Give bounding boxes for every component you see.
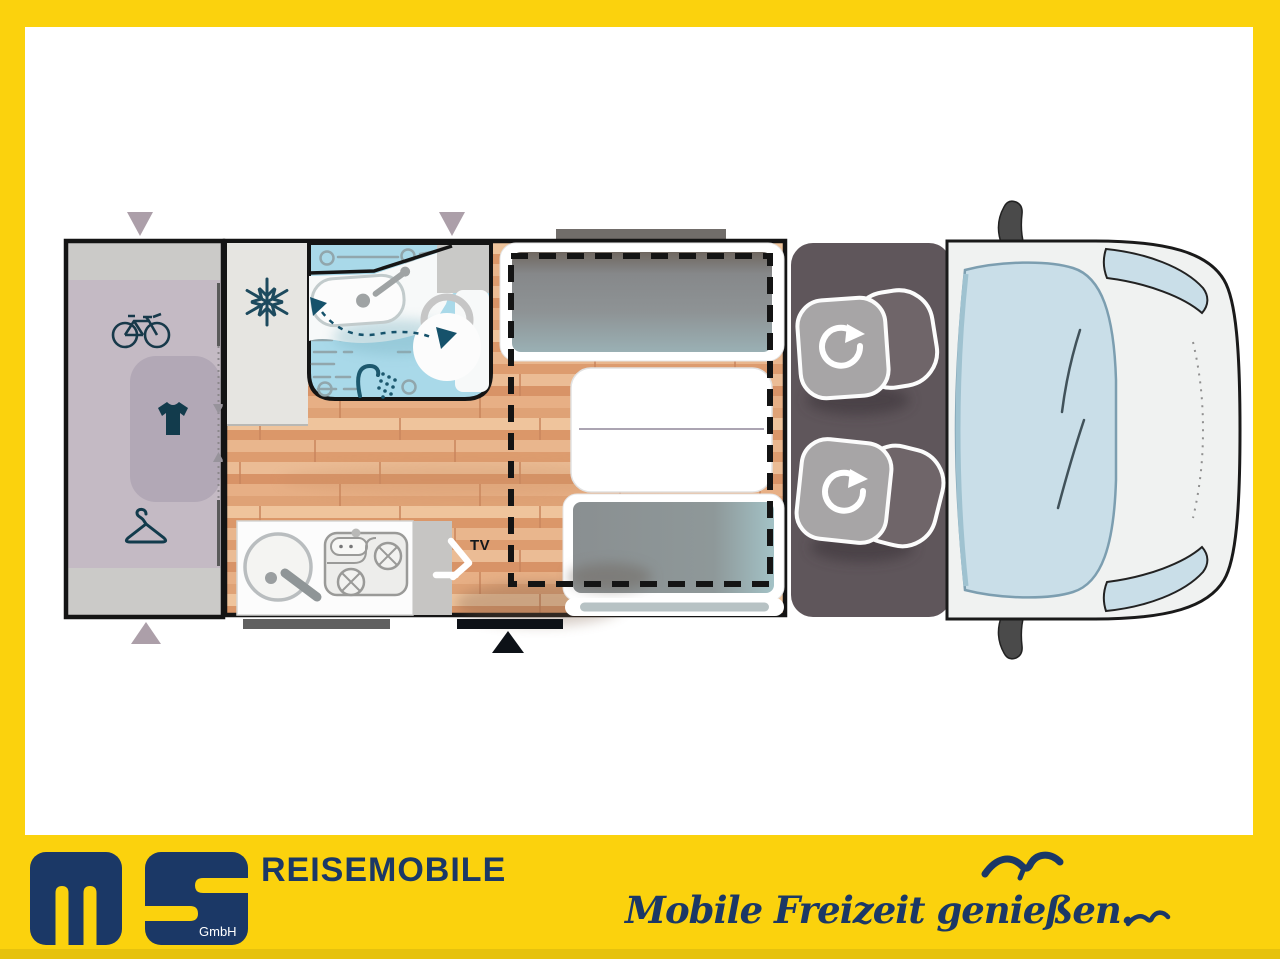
bathroom-shelf [437, 245, 489, 293]
tv-label: TV [470, 537, 490, 554]
floorplan-graphic [0, 0, 1280, 959]
fridge [227, 243, 308, 425]
kitchen-skirt-step [243, 619, 390, 629]
two-burner-stove-icon [325, 529, 407, 596]
bathroom [309, 243, 491, 399]
dinette-table [571, 368, 772, 492]
roof-rail-bar [556, 229, 726, 240]
swivel-seat-icon [794, 437, 951, 554]
logo-m-block [30, 852, 122, 945]
bench-front-cushion [512, 252, 772, 352]
kitchen [237, 521, 452, 615]
seagull-icon-small [1128, 913, 1168, 924]
entry-step [457, 619, 563, 629]
brand-title: REISEMOBILE [261, 851, 506, 890]
logo-gmbh-label: GmbH [199, 924, 237, 939]
dealer-floorplan-image: TV REISEMOBILE Mobile Freizeit genießen.… [0, 0, 1280, 959]
brand-slogan: Mobile Freizeit genießen. [625, 888, 1133, 932]
cab [791, 243, 951, 617]
vehicle-front [947, 201, 1240, 659]
rear-garage [66, 241, 224, 617]
windshield [956, 263, 1116, 598]
swivel-seat-icon [796, 285, 942, 400]
